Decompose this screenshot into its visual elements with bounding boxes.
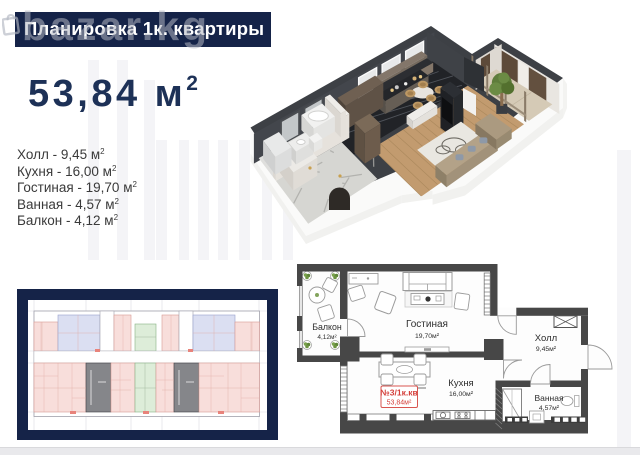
svg-text:Ванная: Ванная (534, 393, 564, 403)
svg-text:53,84м²: 53,84м² (387, 400, 412, 407)
svg-text:Кухня: Кухня (448, 378, 473, 389)
svg-text:Балкон: Балкон (312, 322, 342, 332)
svg-text:4,57м²: 4,57м² (539, 405, 560, 412)
svg-text:9,45м²: 9,45м² (536, 346, 557, 353)
svg-text:4,12м²: 4,12м² (317, 334, 337, 341)
svg-text:№3/1к.кв: №3/1к.кв (380, 388, 417, 398)
svg-text:Холл: Холл (535, 333, 557, 344)
svg-text:19,70м²: 19,70м² (415, 333, 440, 340)
svg-text:Гостиная: Гостиная (406, 319, 448, 330)
svg-text:16,00м²: 16,00м² (449, 391, 474, 398)
